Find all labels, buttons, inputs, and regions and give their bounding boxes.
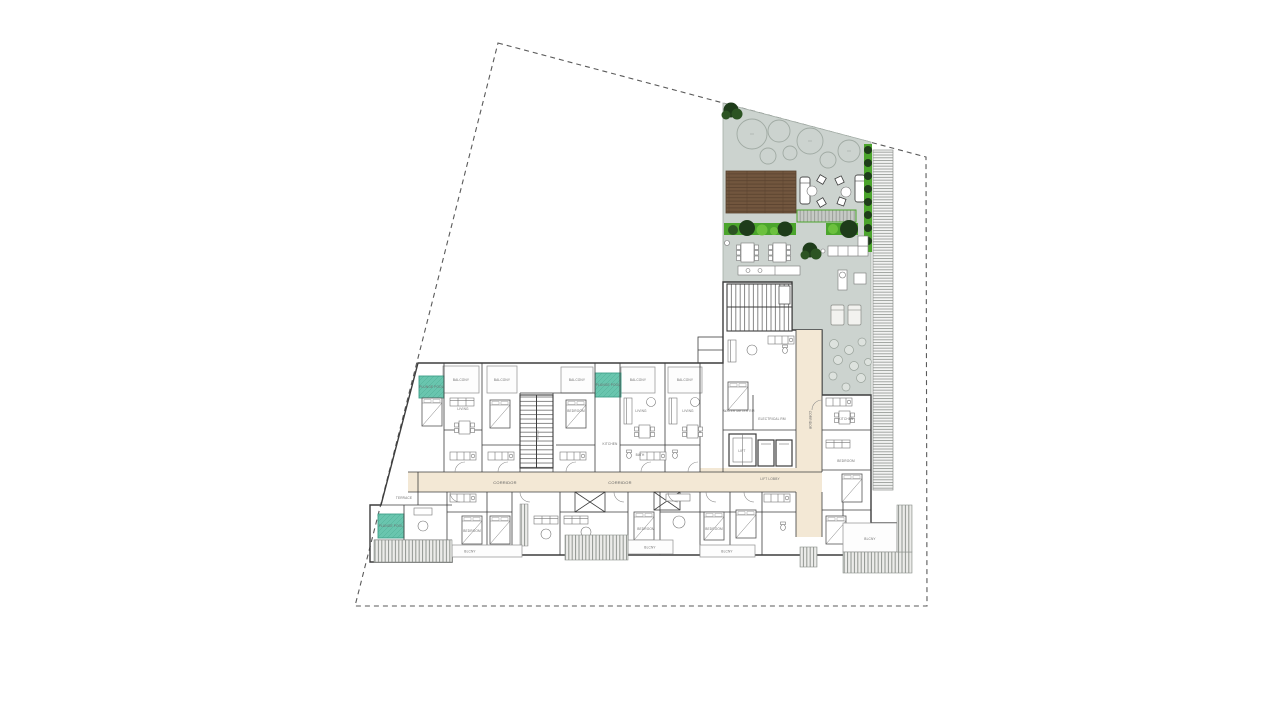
sofa-symbol [826,440,850,448]
svg-text:BLCNY: BLCNY [864,537,876,541]
bed-symbol [704,512,724,540]
toilet-symbol [673,450,678,459]
bed-symbol [566,400,586,428]
svg-text:CORRIDOR: CORRIDOR [493,480,516,485]
sofa-symbol [564,516,588,524]
svg-text:BEDROOM: BEDROOM [705,527,723,531]
svg-text:PLUNGE POOL: PLUNGE POOL [379,524,404,528]
svg-text:BALCONY: BALCONY [494,378,511,382]
floor-plan-drawing: BALCONY BALCONY BALCONY BALCONY BALCONY … [0,0,1280,720]
bed-symbol [490,400,510,428]
svg-text:PLUNGE POOL: PLUNGE POOL [419,385,444,389]
sofa-symbol [450,398,474,406]
kitchen-symbol [450,494,476,502]
svg-text:BATH: BATH [636,453,645,457]
svg-text:LIVING: LIVING [457,407,469,411]
svg-text:BEDROOM: BEDROOM [567,409,585,413]
svg-text:CORRIDOR: CORRIDOR [808,411,812,430]
kitchen-symbol [768,336,794,344]
kitchen-symbol [560,452,586,460]
kitchen-symbol [450,452,476,460]
stair-core-upper [727,284,792,331]
toilet-symbol [627,450,632,459]
bed-symbol [634,512,654,540]
timber-deck [726,171,796,213]
louver-screen [873,150,893,490]
svg-text:BEDROOM: BEDROOM [463,529,481,533]
svg-text:LIVING: LIVING [635,409,647,413]
floor-plan-page: BALCONY BALCONY BALCONY BALCONY BALCONY … [0,0,1280,720]
svg-text:PLUNGE POOL: PLUNGE POOL [596,383,621,387]
bed-symbol [728,382,748,410]
svg-text:BALCONY: BALCONY [630,378,647,382]
bed-symbol [422,398,442,426]
toilet-symbol [783,345,788,354]
svg-text:WATER METER RM: WATER METER RM [723,409,754,413]
svg-text:LIFT: LIFT [738,449,745,453]
kitchen-symbol [764,494,790,502]
svg-text:BLCNY: BLCNY [464,550,476,554]
paper-background [0,0,1280,720]
kitchen-symbol [488,452,514,460]
svg-text:CORRIDOR: CORRIDOR [608,480,631,485]
kitchen-symbol [826,398,852,406]
svg-text:KITCHEN: KITCHEN [838,417,854,421]
svg-text:STAIR: STAIR [535,430,539,440]
svg-text:BEDROOM: BEDROOM [637,527,655,531]
bed-symbol [490,516,510,544]
toilet-symbol [781,522,786,531]
svg-text:LIVING: LIVING [682,409,694,413]
svg-text:BLCNY: BLCNY [644,546,656,550]
svg-text:TERRACE: TERRACE [396,496,412,500]
svg-text:BALCONY: BALCONY [569,378,586,382]
sofa-symbol [534,516,558,524]
svg-text:ELECTRICAL RM: ELECTRICAL RM [758,417,786,421]
bed-symbol [842,474,862,502]
bed-symbol [736,510,756,538]
svg-text:BALCONY: BALCONY [453,378,470,382]
svg-text:BALCONY: BALCONY [677,378,694,382]
svg-text:LIFT LOBBY: LIFT LOBBY [760,477,780,481]
svg-text:BLCNY: BLCNY [721,550,733,554]
svg-text:KITCHEN: KITCHEN [602,442,618,446]
bbq-counter [738,266,800,275]
svg-text:BEDROOM: BEDROOM [837,459,855,463]
